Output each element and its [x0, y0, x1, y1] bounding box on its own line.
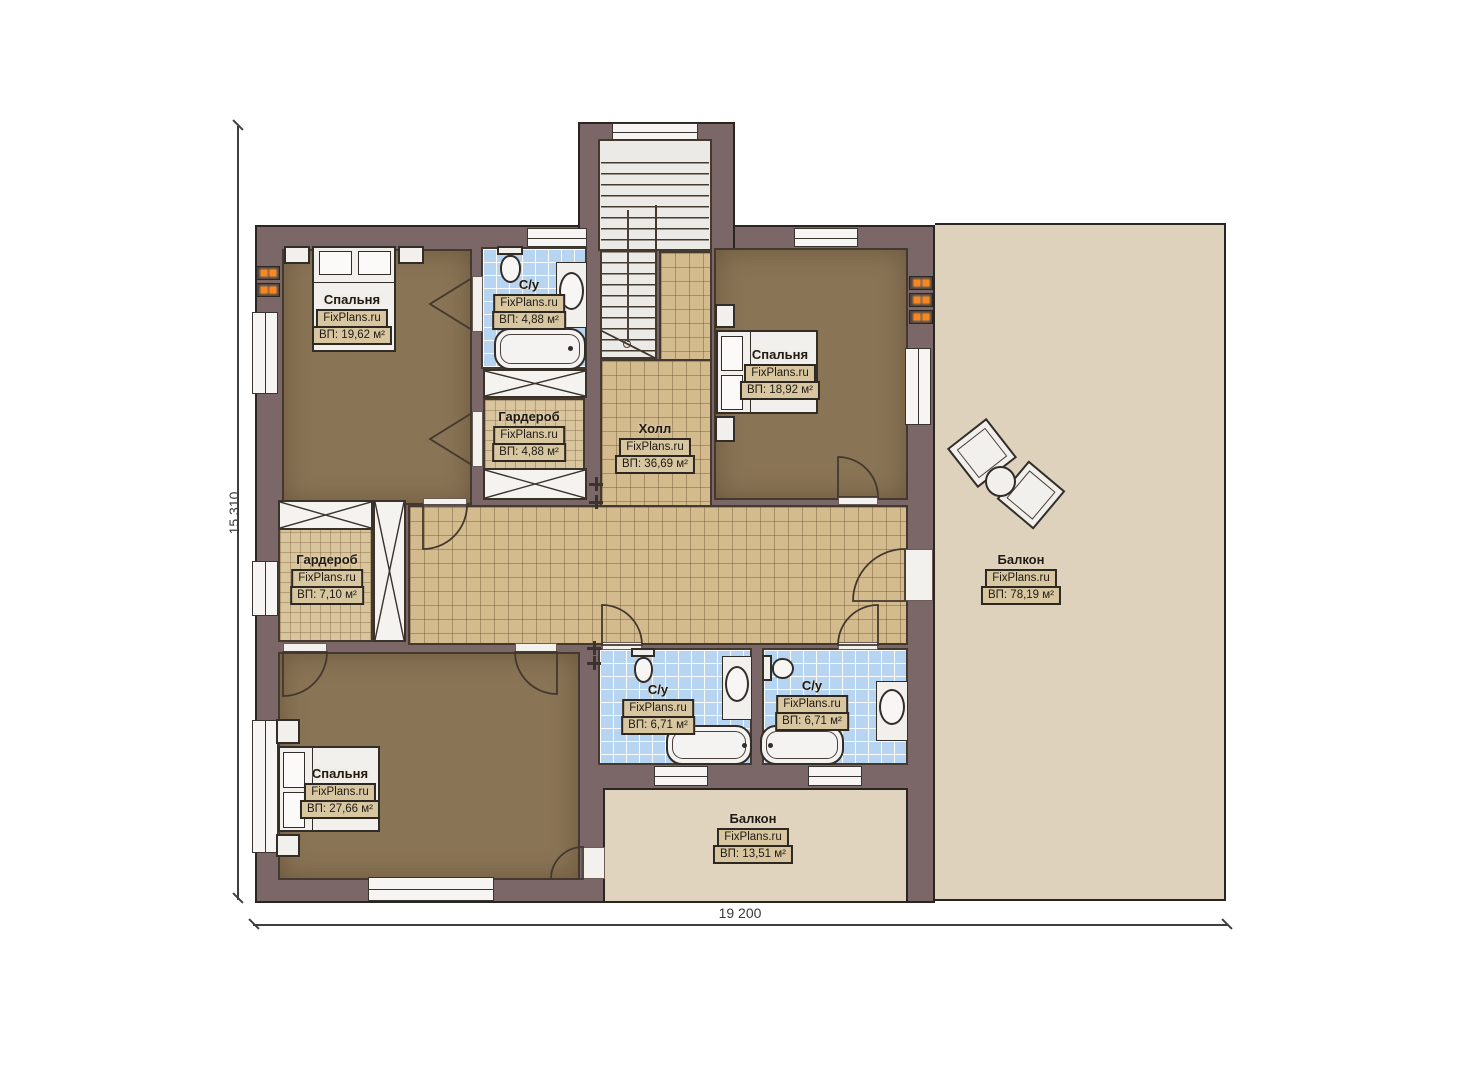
door-arc: [838, 457, 878, 497]
door-arc: [551, 847, 583, 879]
room-area: ВП: 19,62 м²: [312, 326, 392, 345]
room-area: ВП: 27,66 м²: [300, 800, 380, 819]
room-label: Спальня FixPlans.ru ВП: 27,66 м²: [300, 766, 380, 819]
room-area: ВП: 13,51 м²: [713, 845, 793, 864]
room-label: Балкон FixPlans.ru ВП: 13,51 м²: [713, 811, 793, 864]
door-arc: [853, 549, 905, 601]
room-label: С/у FixPlans.ru ВП: 4,88 м²: [492, 277, 566, 330]
door-arc: [602, 605, 642, 645]
room-label: Гардероб FixPlans.ru ВП: 4,88 м²: [492, 409, 566, 462]
room-label: С/у FixPlans.ru ВП: 6,71 м²: [621, 682, 695, 735]
door-arc: [515, 652, 557, 694]
door-arc: [423, 505, 467, 549]
room-label: Балкон FixPlans.ru ВП: 78,19 м²: [981, 552, 1061, 605]
room-name: Гардероб: [296, 552, 357, 567]
room-name: Гардероб: [498, 409, 559, 424]
door-swing-overlay: [0, 0, 1473, 1080]
room-area: ВП: 78,19 м²: [981, 586, 1061, 605]
room-area: ВП: 18,92 м²: [740, 381, 820, 400]
room-area: ВП: 6,71 м²: [775, 712, 849, 731]
room-label: Гардероб FixPlans.ru ВП: 7,10 м²: [290, 552, 364, 605]
room-area: ВП: 6,71 м²: [621, 716, 695, 735]
door-arc: [838, 605, 878, 645]
room-name: С/у: [648, 682, 668, 697]
room-name: С/у: [519, 277, 539, 292]
floor-plan: Спальня FixPlans.ru ВП: 19,62 м² С/у Fix…: [0, 0, 1473, 1080]
room-name: Спальня: [752, 347, 808, 362]
room-area: ВП: 4,88 м²: [492, 311, 566, 330]
room-label: Спальня FixPlans.ru ВП: 18,92 м²: [740, 347, 820, 400]
room-name: Балкон: [730, 811, 777, 826]
folding-door: [430, 278, 472, 330]
room-name: Холл: [639, 421, 672, 436]
room-area: ВП: 7,10 м²: [290, 586, 364, 605]
room-area: ВП: 4,88 м²: [492, 443, 566, 462]
room-label: Спальня FixPlans.ru ВП: 19,62 м²: [312, 292, 392, 345]
room-label: Холл FixPlans.ru ВП: 36,69 м²: [615, 421, 695, 474]
room-area: ВП: 36,69 м²: [615, 455, 695, 474]
stair-cut-line: [600, 330, 657, 359]
room-label: С/у FixPlans.ru ВП: 6,71 м²: [775, 678, 849, 731]
door-arc: [283, 652, 327, 696]
room-name: Спальня: [312, 766, 368, 781]
room-name: Балкон: [998, 552, 1045, 567]
room-name: С/у: [802, 678, 822, 693]
room-name: Спальня: [324, 292, 380, 307]
folding-door: [430, 413, 472, 465]
